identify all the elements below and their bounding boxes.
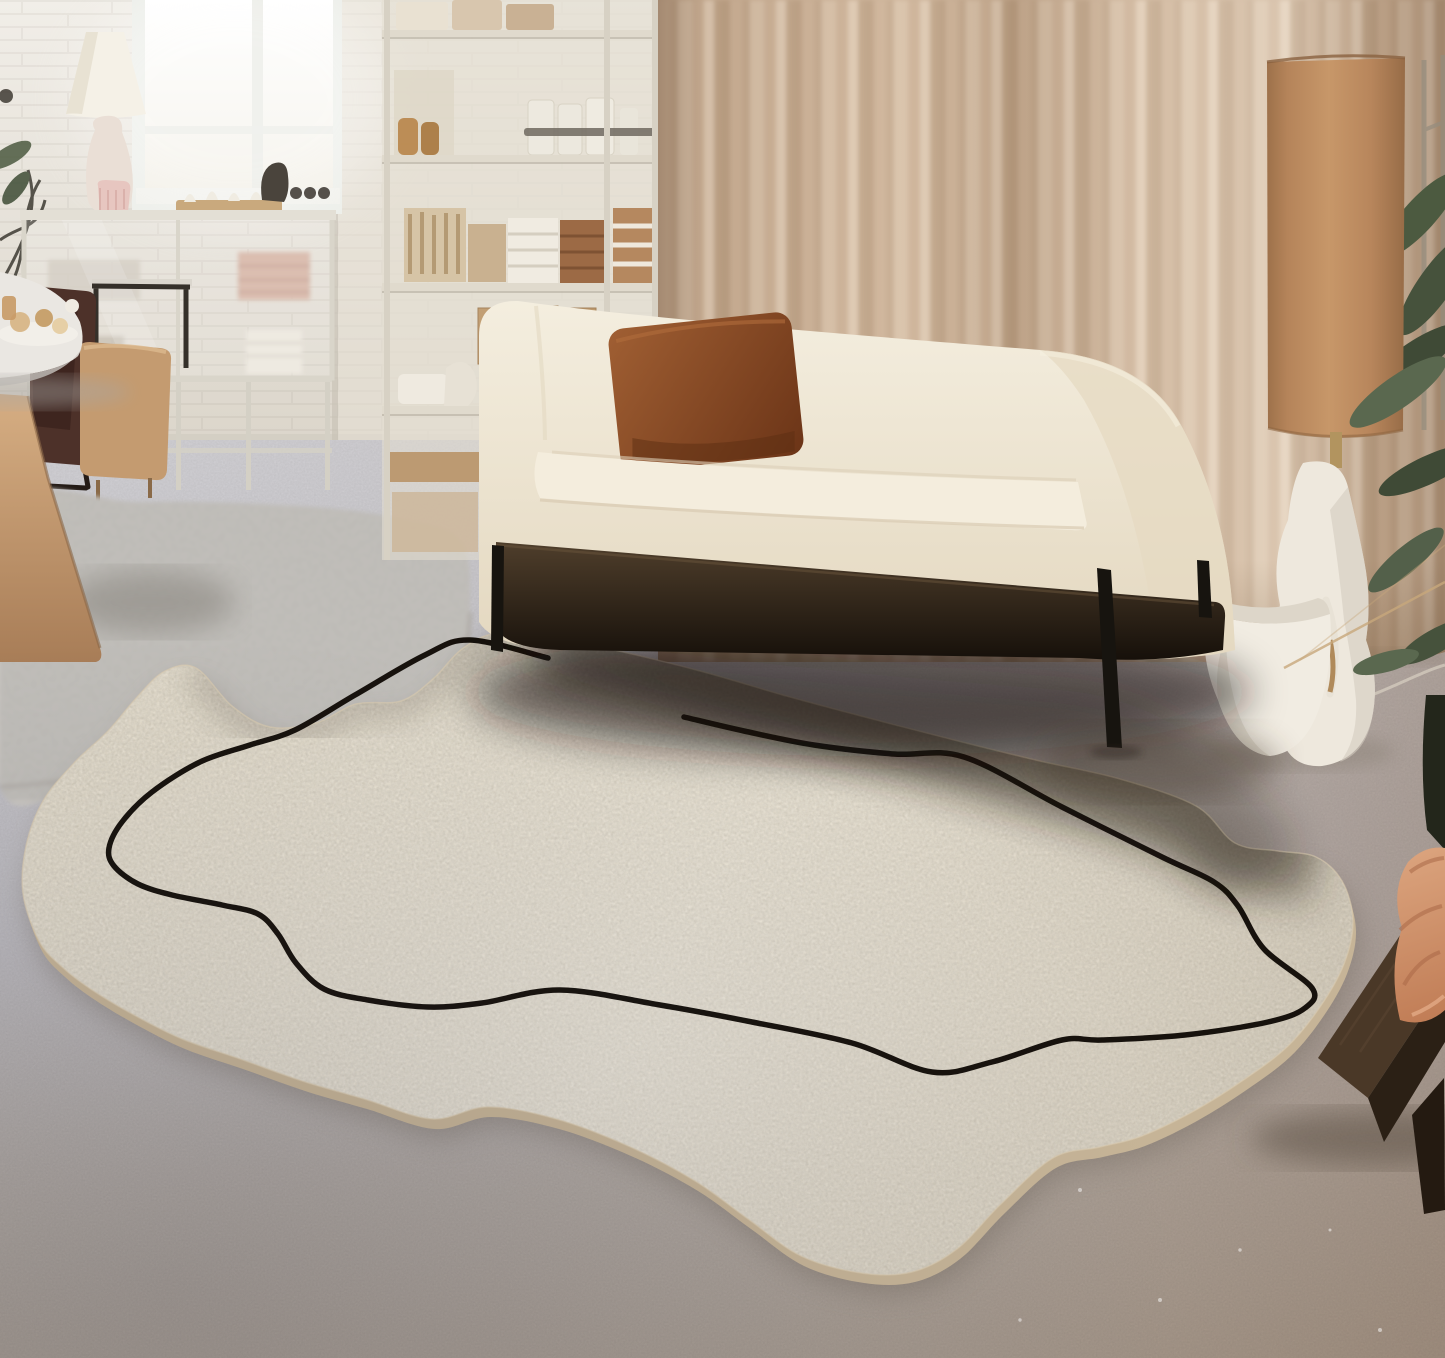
pastry [52, 318, 68, 334]
dark-rail [524, 128, 656, 136]
small-cup [65, 299, 79, 313]
knob [318, 187, 330, 199]
photo-canvas [0, 0, 1445, 1358]
amber-bottle [398, 118, 418, 155]
knob [290, 187, 302, 199]
textile-stack [396, 2, 448, 30]
textile-stack [506, 4, 554, 30]
white-canister [528, 100, 554, 155]
amber-bottle [421, 122, 439, 155]
textile-stack [452, 0, 502, 30]
table-lamp-pink-vessel [98, 180, 131, 215]
cabinet-top [20, 210, 336, 220]
cabinet-divider [176, 216, 180, 378]
knob [304, 187, 316, 199]
soap-stack [398, 374, 448, 404]
amber-glass [2, 296, 16, 320]
pastry [35, 309, 53, 327]
parcel [468, 224, 506, 282]
living-room-scene [0, 0, 1445, 1358]
floor-lamp-shade [1267, 58, 1405, 438]
vignette [0, 430, 1445, 1358]
